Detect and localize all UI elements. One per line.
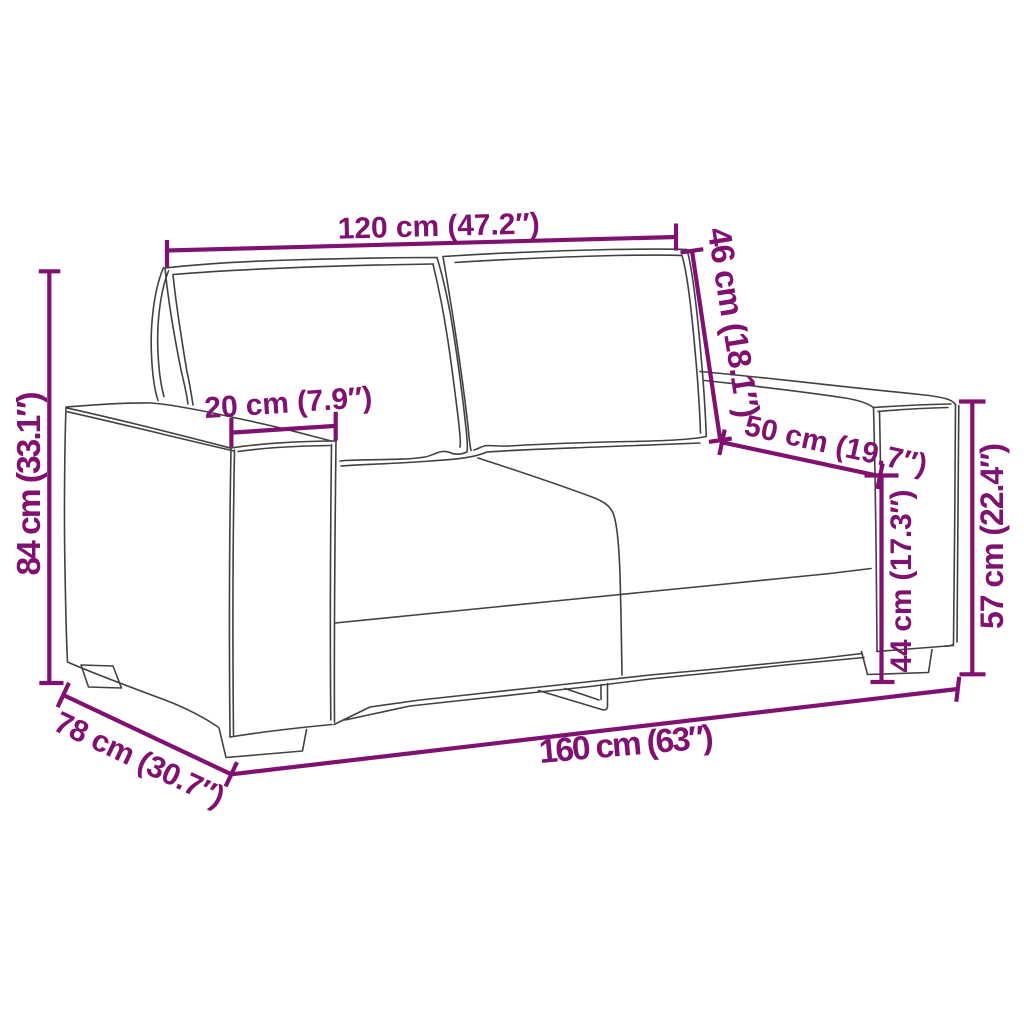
svg-text:84 cm (33.1″): 84 cm (33.1″) (11, 392, 48, 576)
svg-text:57 cm (22.4″): 57 cm (22.4″) (974, 443, 1010, 629)
svg-text:44 cm (17.3″): 44 cm (17.3″) (885, 490, 918, 673)
svg-text:120 cm (47.2″): 120 cm (47.2″) (337, 207, 540, 245)
